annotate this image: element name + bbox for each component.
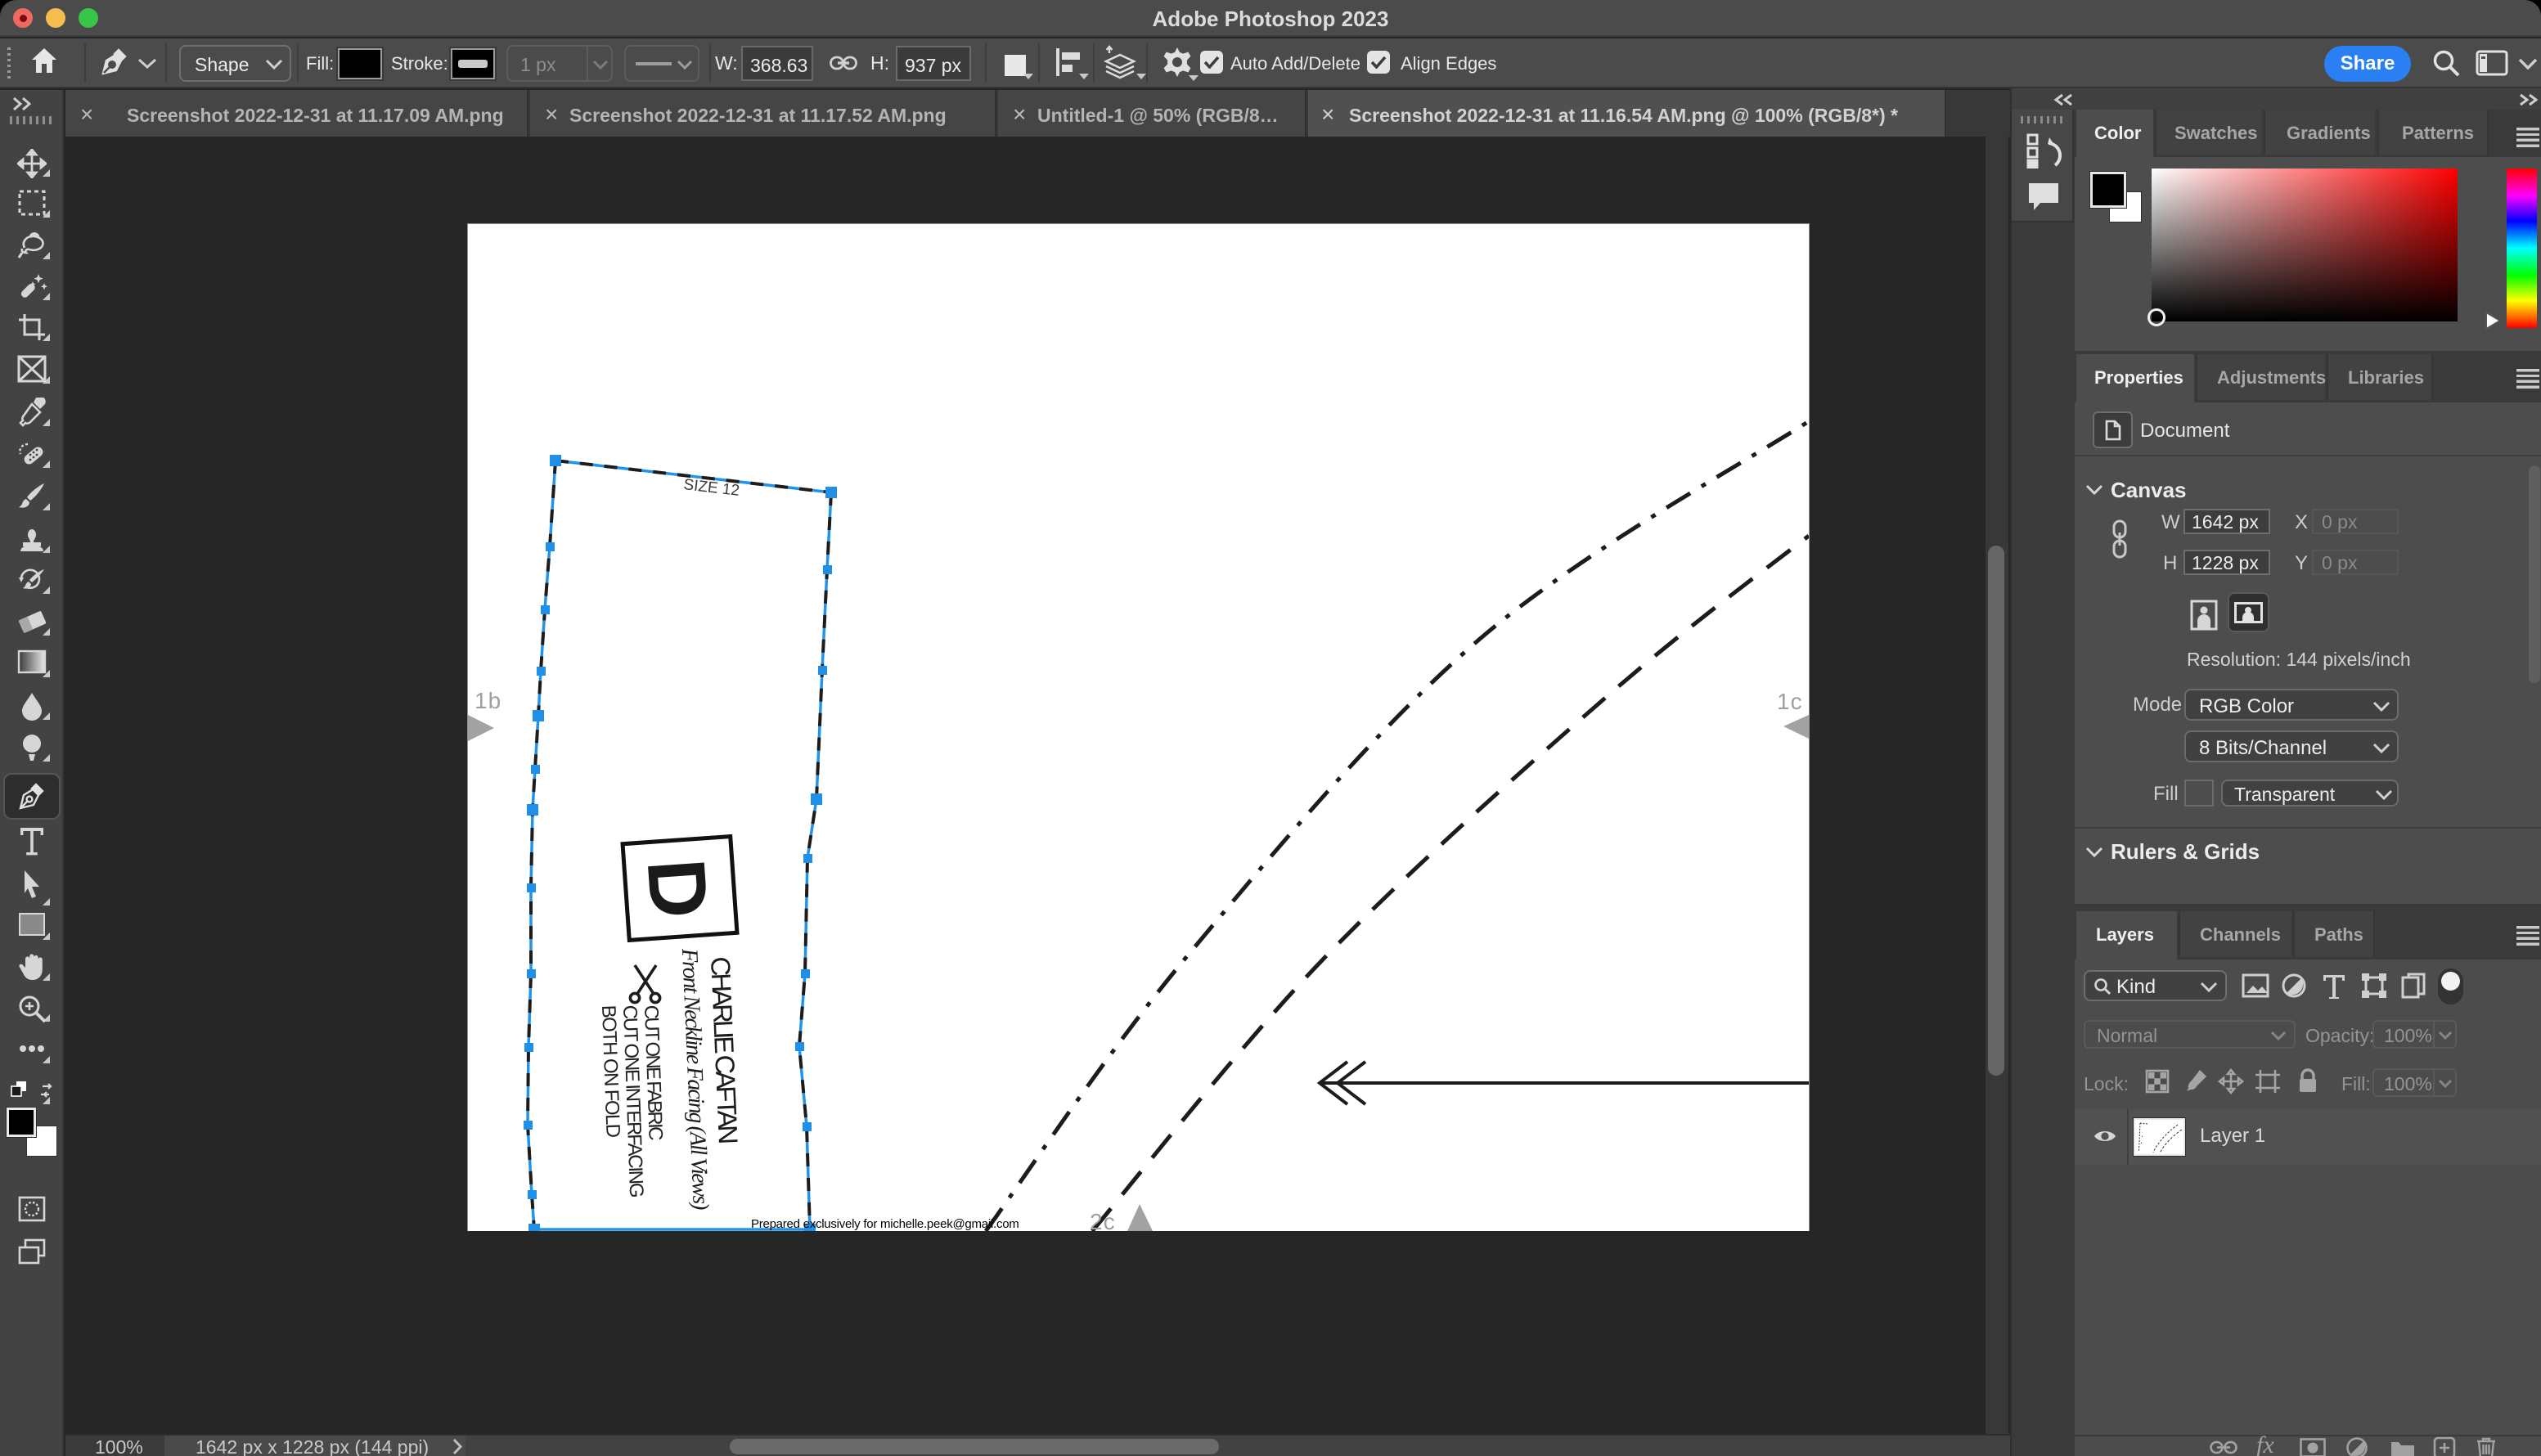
svg-text:CHARLIE CAFTAN: CHARLIE CAFTAN <box>705 956 744 1144</box>
svg-text:2c: 2c <box>1090 1209 1116 1231</box>
svg-text:Prepared exclusively for miche: Prepared exclusively for michelle.peek@g… <box>751 1217 1019 1231</box>
svg-text:D: D <box>630 856 726 921</box>
svg-text:1c: 1c <box>1777 689 1803 714</box>
svg-text:1b: 1b <box>474 688 501 713</box>
svg-text:BOTH ON FOLD: BOTH ON FOLD <box>597 1004 624 1138</box>
